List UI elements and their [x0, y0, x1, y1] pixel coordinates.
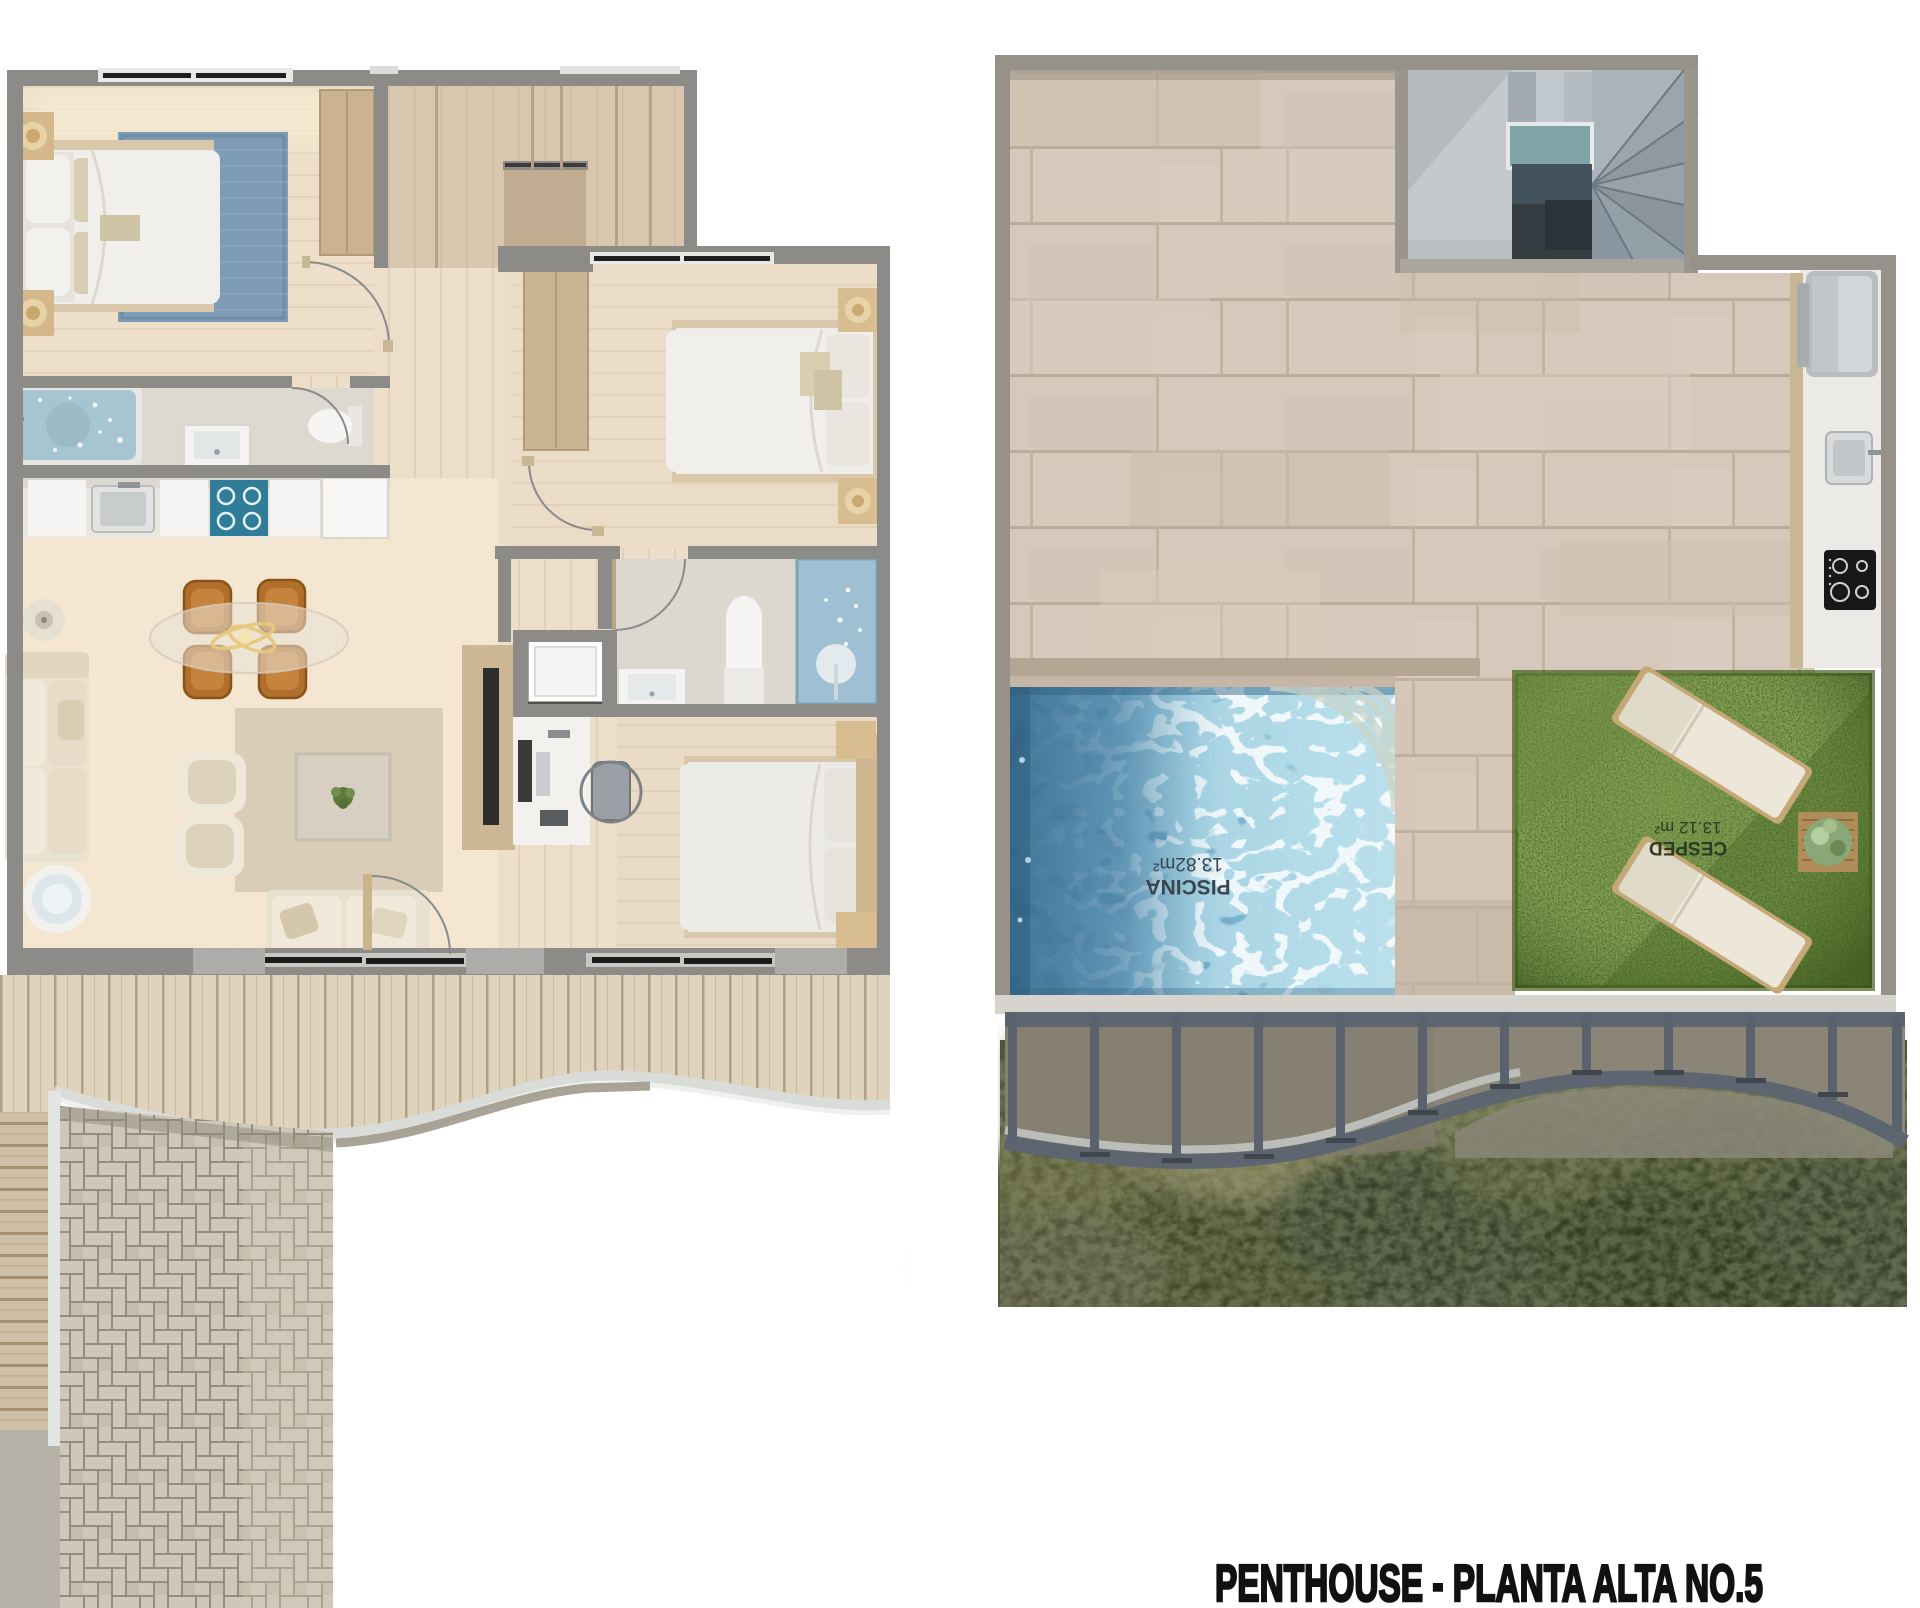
svg-text:13.82m²: 13.82m²: [1153, 853, 1223, 874]
svg-text:PISCINA: PISCINA: [1145, 875, 1230, 898]
svg-text:PENTHOUSE - PLANTA ALTA NO.5: PENTHOUSE - PLANTA ALTA NO.5: [1215, 1555, 1763, 1608]
svg-text:13.12 m²: 13.12 m²: [1654, 818, 1721, 837]
svg-text:CESPED: CESPED: [1649, 837, 1727, 858]
